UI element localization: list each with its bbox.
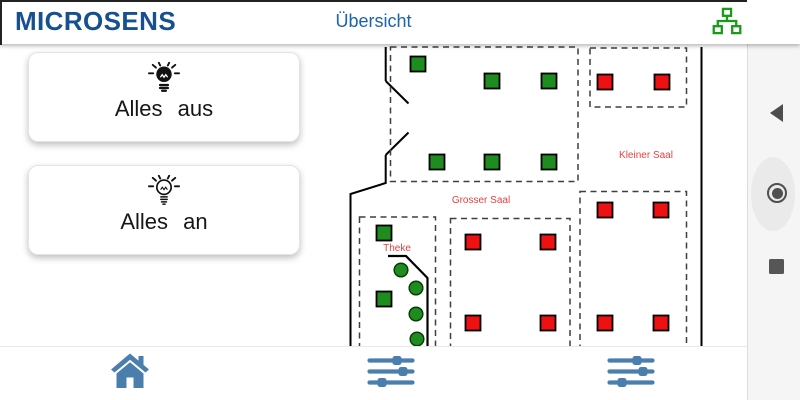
light-indicator-off[interactable]: [466, 235, 481, 250]
light-indicator-on[interactable]: [542, 74, 557, 89]
home-icon: [110, 353, 150, 389]
light-indicator-on[interactable]: [485, 155, 500, 170]
app-screen: MICROSENS Übersicht: [0, 0, 800, 400]
light-indicator-on[interactable]: [377, 226, 392, 241]
light-indicator-off[interactable]: [655, 75, 670, 90]
room-label: Theke: [383, 243, 411, 254]
bulb-on-icon: [147, 175, 181, 207]
floorplan-room-borders: [360, 47, 687, 346]
all-on-label: Alles an: [29, 209, 299, 235]
android-recents-button[interactable]: [769, 259, 784, 274]
bulb-off-icon: [147, 62, 181, 94]
light-indicator-off[interactable]: [654, 203, 669, 218]
light-indicator-on[interactable]: [409, 281, 423, 295]
light-controls-button-1[interactable]: [367, 356, 415, 391]
android-nav-bar: [747, 44, 800, 400]
light-indicator-on[interactable]: [394, 263, 408, 277]
screen-edge-left: [0, 0, 2, 45]
all-off-label: Alles aus: [29, 96, 299, 122]
light-indicator-off[interactable]: [598, 316, 613, 331]
light-controls-button-2[interactable]: [607, 356, 655, 391]
light-indicator-off[interactable]: [598, 75, 613, 90]
light-indicator-off[interactable]: [541, 316, 556, 331]
home-nav-button[interactable]: [110, 353, 150, 392]
light-indicator-on[interactable]: [409, 307, 423, 321]
room-label: Kleiner Saal: [619, 150, 673, 161]
room-label: Grosser Saal: [452, 195, 510, 206]
light-indicator-on[interactable]: [410, 332, 424, 346]
android-home-button[interactable]: [767, 183, 787, 203]
page-title: Übersicht: [0, 11, 747, 32]
network-status-icon[interactable]: [712, 7, 742, 37]
screen-edge-top: [0, 0, 747, 2]
tune-icon: [367, 356, 415, 388]
light-indicator-off[interactable]: [598, 203, 613, 218]
floorplan-walls: [351, 47, 702, 346]
floorplan: Grosser SaalKleiner SaalTheke: [340, 40, 748, 346]
all-lights-off-button[interactable]: Alles aus: [28, 52, 300, 142]
light-indicator-on[interactable]: [411, 57, 426, 72]
light-indicator-off[interactable]: [654, 316, 669, 331]
light-indicator-off[interactable]: [466, 316, 481, 331]
lan-icon: [712, 7, 742, 35]
light-indicator-on[interactable]: [430, 155, 445, 170]
light-indicator-on[interactable]: [485, 74, 500, 89]
tune-icon: [607, 356, 655, 388]
light-indicator-on[interactable]: [542, 155, 557, 170]
header: MICROSENS Übersicht: [0, 0, 800, 44]
bottom-nav: [0, 346, 747, 400]
light-indicator-on[interactable]: [377, 292, 392, 307]
circle-icon: [772, 188, 783, 199]
light-indicator-off[interactable]: [541, 235, 556, 250]
all-lights-on-button[interactable]: Alles an: [28, 165, 300, 255]
android-back-button[interactable]: [770, 104, 783, 122]
